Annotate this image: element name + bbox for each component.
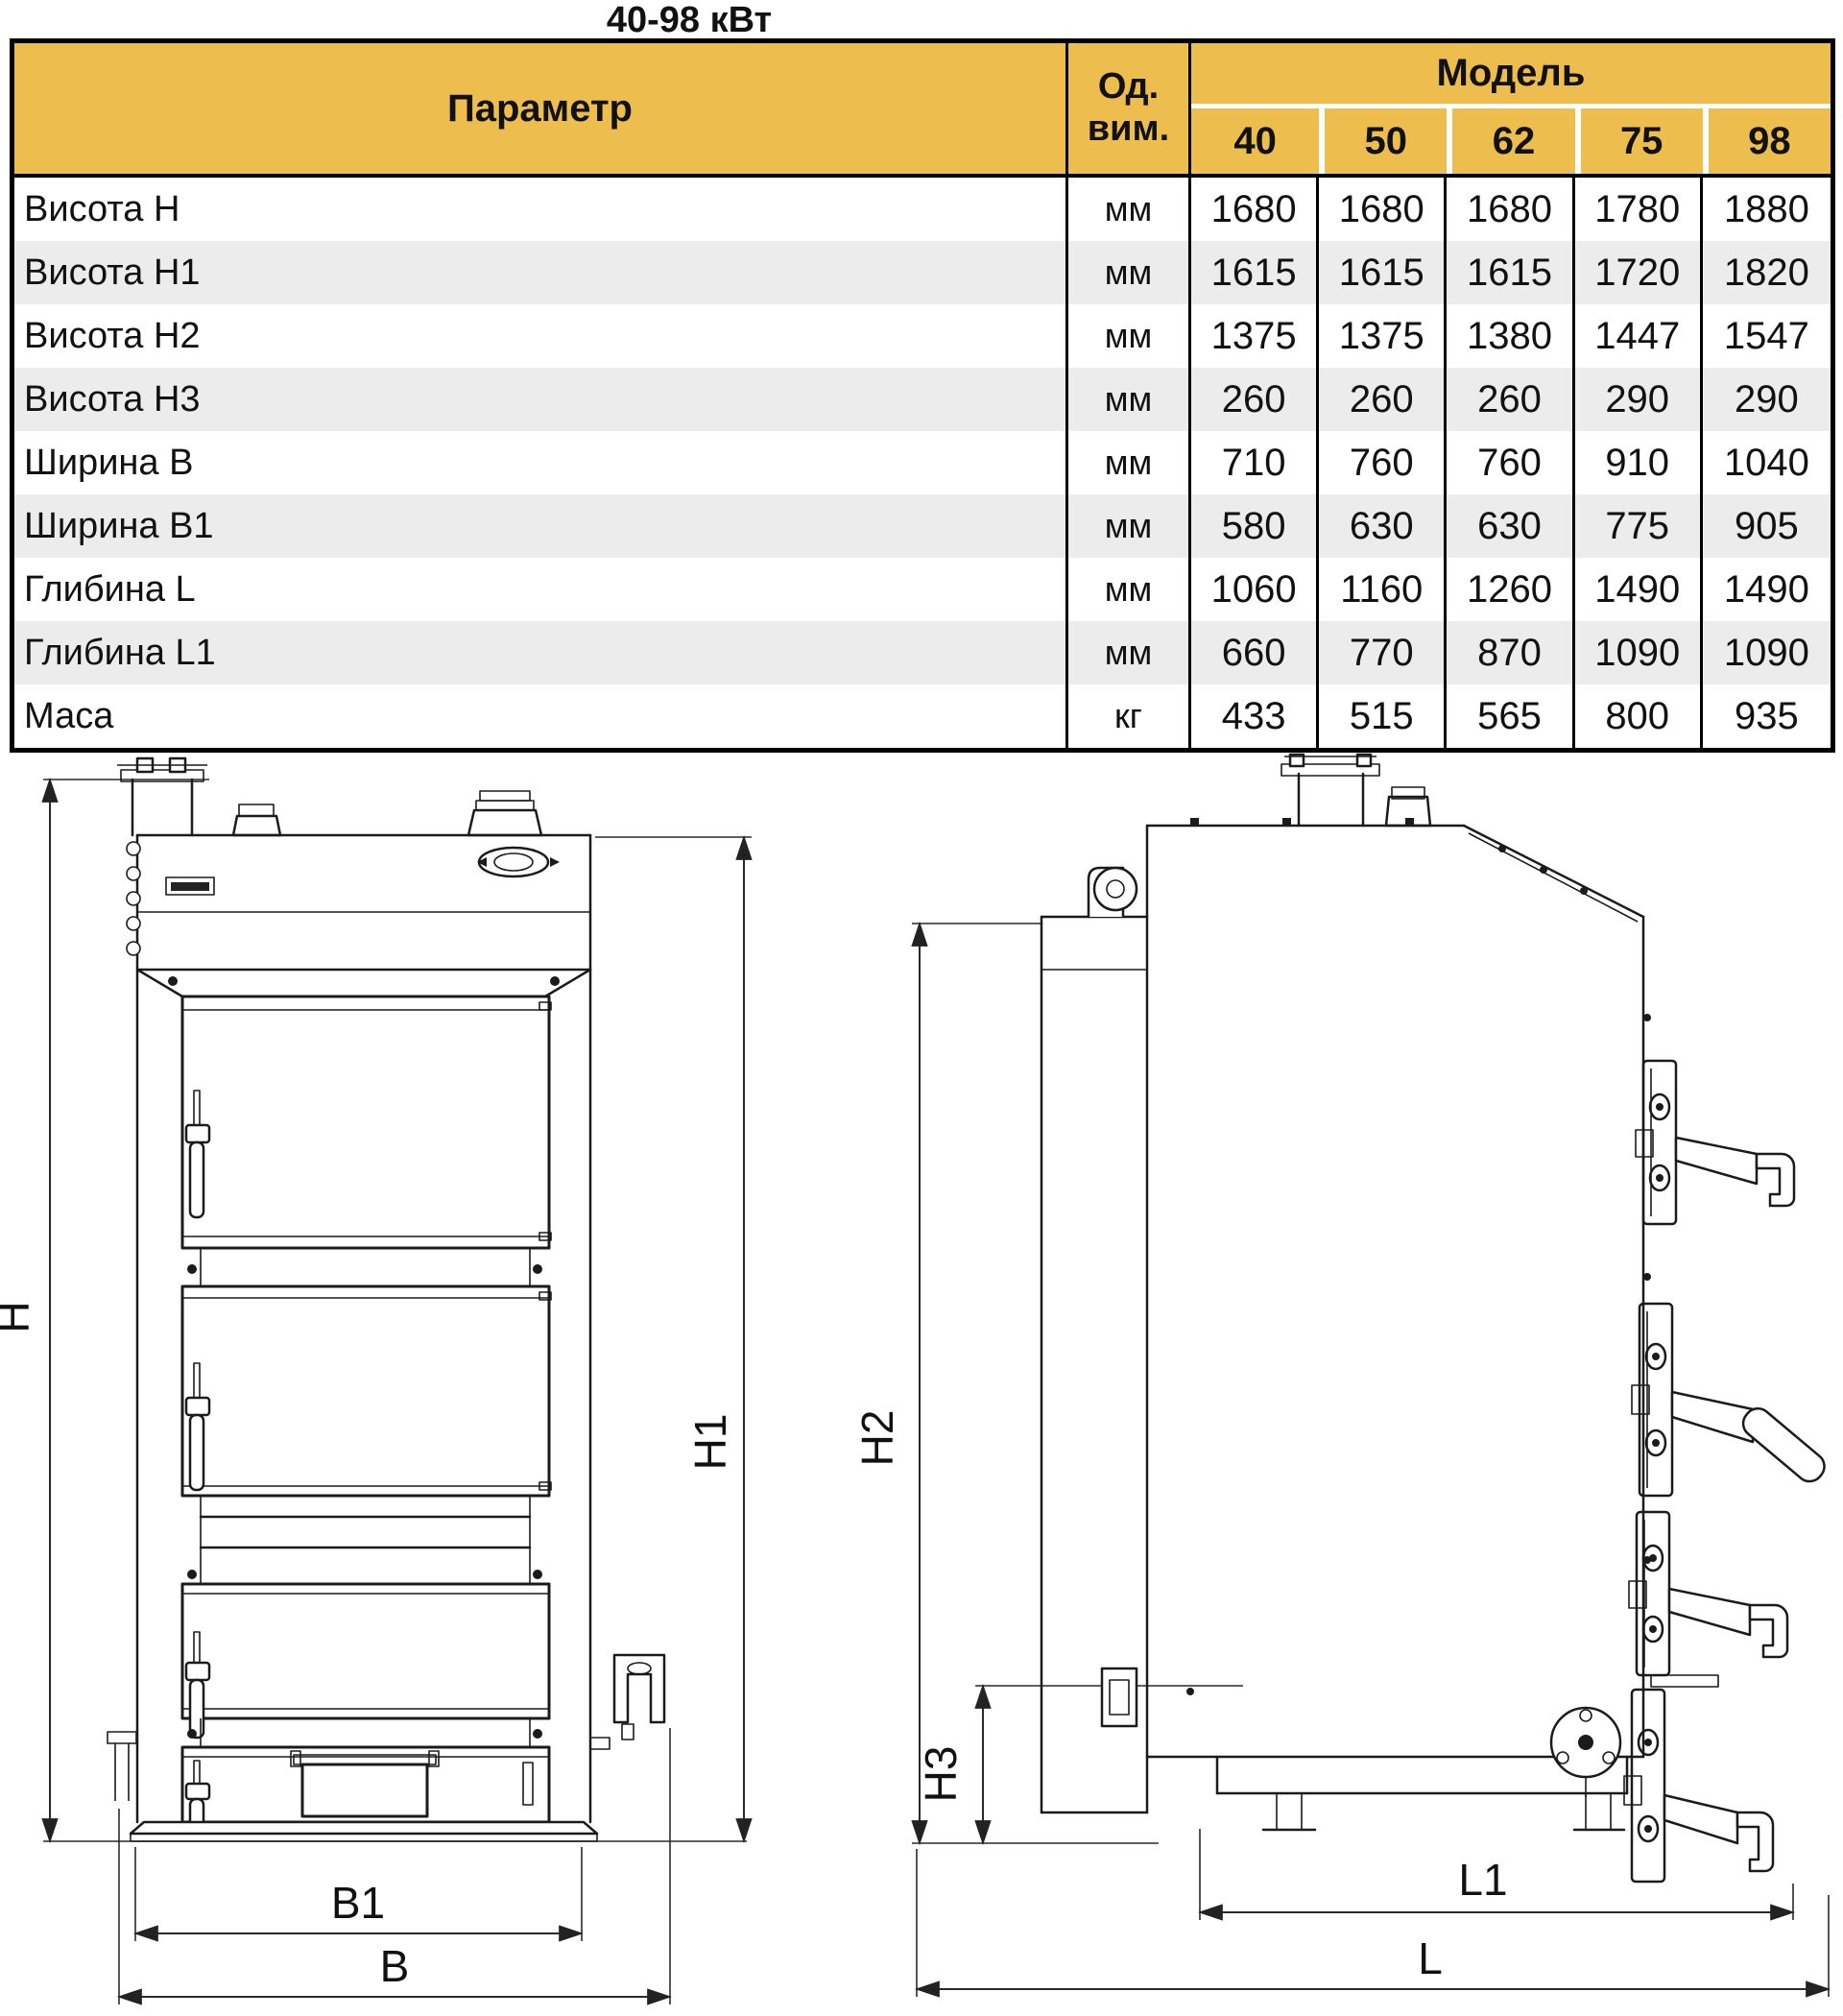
unit-cell: мм — [1068, 368, 1191, 431]
door-latch-middle — [1632, 1304, 1830, 1496]
value-cell: 1160 — [1319, 558, 1447, 621]
vent-oval — [479, 848, 548, 876]
header-model-50: 50 — [1319, 108, 1447, 174]
dim-label-H: H — [0, 1301, 38, 1332]
value-cell: 1615 — [1319, 241, 1447, 304]
value-cell: 770 — [1319, 621, 1447, 684]
value-cell: 1615 — [1447, 241, 1574, 304]
dim-label-B1: B1 — [331, 1878, 385, 1928]
door-upper — [182, 996, 549, 1248]
value-cell: 1040 — [1703, 431, 1831, 494]
value-cell: 800 — [1575, 684, 1703, 748]
header-model-40: 40 — [1191, 108, 1319, 174]
latch-catch-bracket — [614, 1655, 664, 1722]
ash-door-latch — [1624, 1675, 1773, 1882]
unit-cell: мм — [1068, 431, 1191, 494]
unit-cell: мм — [1068, 304, 1191, 368]
unit-cell: мм — [1068, 178, 1191, 241]
value-cell: 515 — [1319, 684, 1447, 748]
value-cell: 290 — [1575, 368, 1703, 431]
value-cell: 565 — [1447, 684, 1574, 748]
value-cell: 1375 — [1319, 304, 1447, 368]
value-cell: 630 — [1319, 494, 1447, 558]
value-cell: 1680 — [1319, 178, 1447, 241]
value-cell: 260 — [1447, 368, 1574, 431]
value-cell: 660 — [1191, 621, 1319, 684]
value-cell: 1090 — [1703, 621, 1831, 684]
nameplate — [171, 882, 209, 891]
unit-cell: мм — [1068, 558, 1191, 621]
parameter-label: Ширина B — [14, 431, 1068, 494]
value-cell: 1615 — [1191, 241, 1319, 304]
parameter-label: Маса — [14, 684, 1068, 748]
value-cell: 710 — [1191, 431, 1319, 494]
value-cell: 1060 — [1191, 558, 1319, 621]
value-cell: 260 — [1191, 368, 1319, 431]
value-cell: 1780 — [1575, 178, 1703, 241]
table-row: Висота H2 мм 1375 1375 1380 1447 1547 — [14, 304, 1831, 368]
side-view-drawing: H2 H3 — [852, 755, 1830, 1997]
value-cell: 1680 — [1191, 178, 1319, 241]
header-model-62: 62 — [1447, 108, 1574, 174]
unit-cell: мм — [1068, 494, 1191, 558]
value-cell: 870 — [1447, 621, 1574, 684]
door-middle — [182, 1286, 549, 1496]
value-cell: 290 — [1703, 368, 1831, 431]
value-cell: 1260 — [1447, 558, 1574, 621]
door-latch-lower — [1629, 1512, 1787, 1675]
value-cell: 1680 — [1447, 178, 1574, 241]
table-row: Висота H1 мм 1615 1615 1615 1720 1820 — [14, 241, 1831, 304]
page-title: 40-98 кВт — [607, 0, 772, 41]
parameter-label: Висота H — [14, 178, 1068, 241]
value-cell: 1447 — [1575, 304, 1703, 368]
table-row: Висота H мм 1680 1680 1680 1780 1880 — [14, 178, 1831, 241]
parameter-label: Висота H2 — [14, 304, 1068, 368]
dim-label-L1: L1 — [1458, 1855, 1507, 1905]
unit-cell: кг — [1068, 684, 1191, 748]
value-cell: 630 — [1447, 494, 1574, 558]
value-cell: 1090 — [1575, 621, 1703, 684]
value-cell: 260 — [1319, 368, 1447, 431]
fan-motor — [1094, 868, 1137, 910]
value-cell: 433 — [1191, 684, 1319, 748]
front-view-drawing: H H1 — [0, 758, 752, 2004]
door-handle — [190, 1142, 203, 1217]
dim-label-L: L — [1418, 1933, 1443, 1983]
spec-sheet: 40-98 кВт Параметр Од. вим. Модель 40 50… — [0, 0, 1843, 2016]
door-handle — [190, 1680, 203, 1738]
header-unit: Од. вим. — [1068, 43, 1191, 174]
dim-label-H3: H3 — [916, 1746, 966, 1803]
unit-cell: мм — [1068, 241, 1191, 304]
value-cell: 580 — [1191, 494, 1319, 558]
value-cell: 935 — [1703, 684, 1831, 748]
door-latch-top — [1636, 1061, 1794, 1224]
table-row: Глибина L мм 1060 1160 1260 1490 1490 — [14, 558, 1831, 621]
technical-drawings: H H1 — [0, 749, 1843, 2016]
table-row: Висота H3 мм 260 260 260 290 290 — [14, 368, 1831, 431]
door-handle — [190, 1415, 203, 1490]
parameter-label: Ширина B1 — [14, 494, 1068, 558]
header-parameter: Параметр — [14, 43, 1068, 174]
value-cell: 1375 — [1191, 304, 1319, 368]
value-cell: 760 — [1319, 431, 1447, 494]
value-cell: 1720 — [1575, 241, 1703, 304]
value-cell: 1820 — [1703, 241, 1831, 304]
value-cell: 905 — [1703, 494, 1831, 558]
table-row: Глибина L1 мм 660 770 870 1090 1090 — [14, 621, 1831, 684]
header-model-75: 75 — [1575, 108, 1703, 174]
value-cell: 910 — [1575, 431, 1703, 494]
door-lower — [182, 1584, 549, 1718]
parameter-label: Глибина L1 — [14, 621, 1068, 684]
value-cell: 1490 — [1575, 558, 1703, 621]
dim-label-H2: H2 — [852, 1410, 902, 1467]
header-model-98: 98 — [1703, 108, 1831, 174]
dim-label-B: B — [380, 1941, 410, 1991]
value-cell: 1880 — [1703, 178, 1831, 241]
return-pipe-fitting — [1102, 1668, 1137, 1726]
value-cell: 1547 — [1703, 304, 1831, 368]
table-row: Ширина B мм 710 760 760 910 1040 — [14, 431, 1831, 494]
value-cell: 775 — [1575, 494, 1703, 558]
dim-label-H1: H1 — [685, 1414, 735, 1471]
parameter-label: Висота H3 — [14, 368, 1068, 431]
ash-hatch — [302, 1764, 427, 1816]
value-cell: 1380 — [1447, 304, 1574, 368]
spec-table-header: Параметр Од. вим. Модель 40 50 62 75 98 — [14, 43, 1831, 178]
value-cell: 1490 — [1703, 558, 1831, 621]
header-model: Модель — [1191, 43, 1831, 108]
table-row: Маса кг 433 515 565 800 935 — [14, 684, 1831, 748]
unit-cell: мм — [1068, 621, 1191, 684]
parameter-label: Глибина L — [14, 558, 1068, 621]
spec-table-body: Висота H мм 1680 1680 1680 1780 1880 Вис… — [14, 178, 1831, 748]
table-row: Ширина B1 мм 580 630 630 775 905 — [14, 494, 1831, 558]
spec-table: Параметр Од. вим. Модель 40 50 62 75 98 … — [10, 38, 1835, 753]
parameter-label: Висота H1 — [14, 241, 1068, 304]
value-cell: 760 — [1447, 431, 1574, 494]
